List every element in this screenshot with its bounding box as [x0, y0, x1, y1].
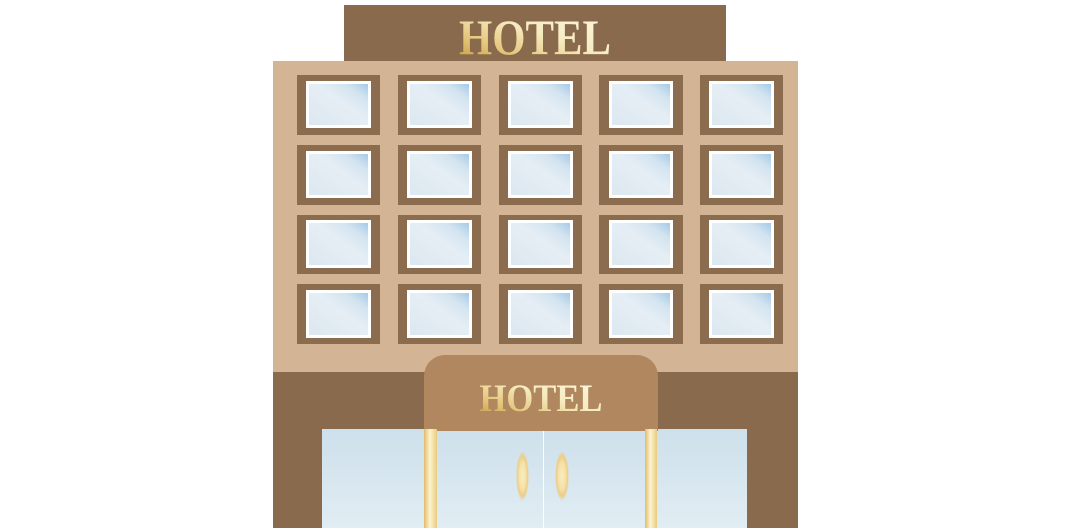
svg-text:HOTEL: HOTEL	[459, 9, 611, 62]
svg-text:HOTEL: HOTEL	[479, 377, 602, 420]
